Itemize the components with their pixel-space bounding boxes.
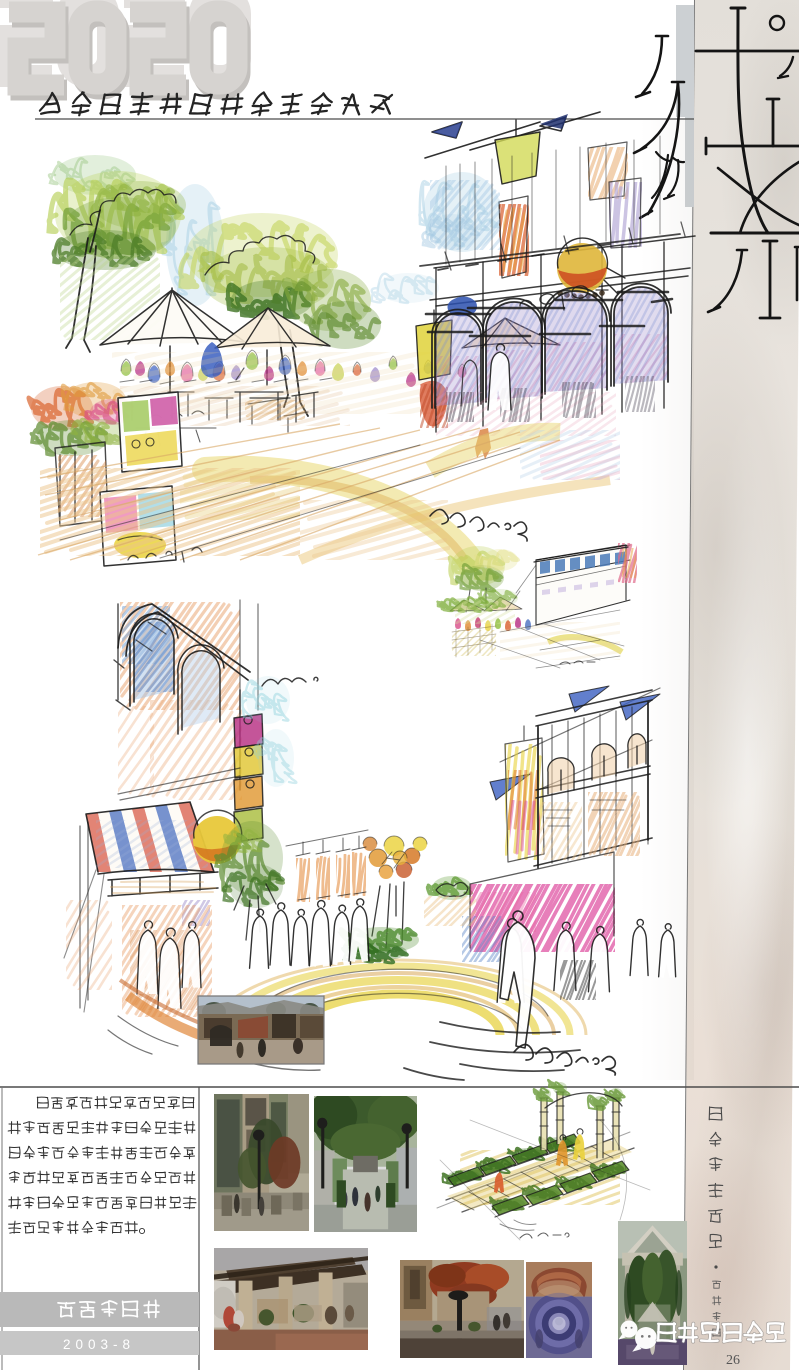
svg-text:2003-8: 2003-8	[63, 1337, 135, 1352]
svg-text:26: 26	[726, 1353, 740, 1368]
